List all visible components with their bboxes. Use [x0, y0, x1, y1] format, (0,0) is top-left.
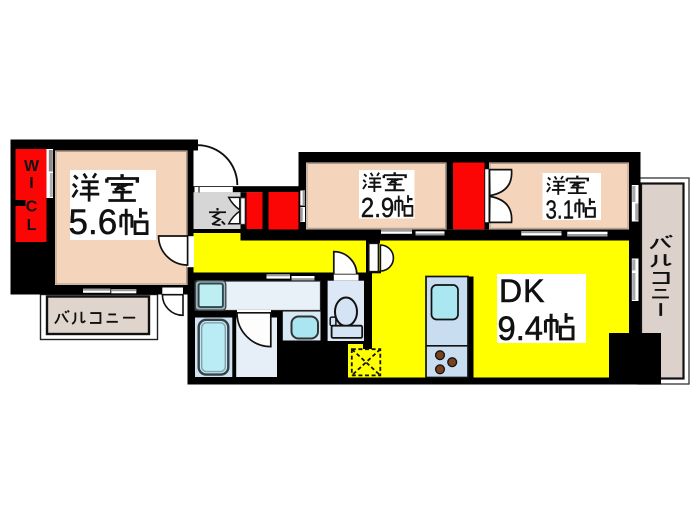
svg-text:2.9: 2.9: [361, 192, 395, 223]
svg-text:5.6: 5.6: [69, 203, 118, 242]
svg-text:3.1: 3.1: [546, 195, 575, 225]
svg-text:L: L: [27, 217, 37, 234]
svg-text:9.4: 9.4: [498, 310, 544, 348]
svg-text:I: I: [29, 175, 33, 192]
svg-text:DK: DK: [499, 273, 545, 309]
svg-text:W: W: [24, 158, 40, 175]
svg-text:C: C: [26, 199, 38, 216]
